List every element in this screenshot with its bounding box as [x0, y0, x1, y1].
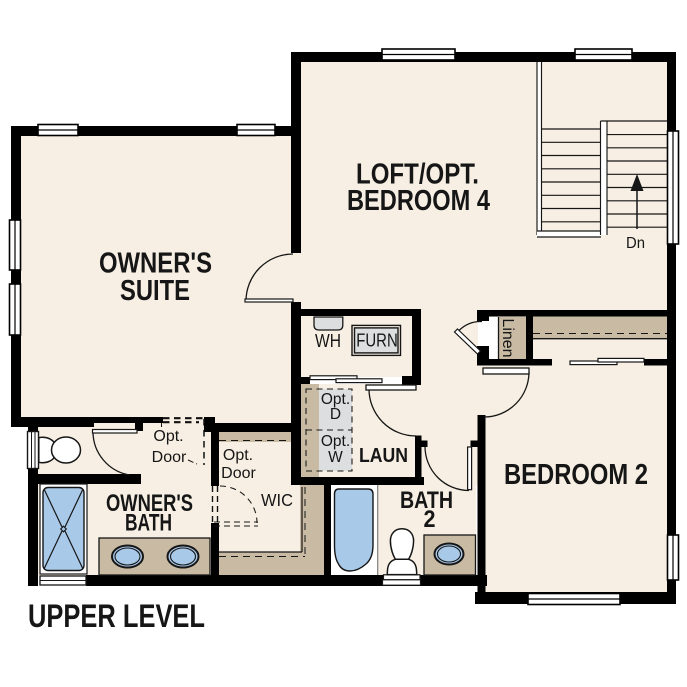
svg-text:BEDROOM 4: BEDROOM 4 — [347, 185, 490, 217]
svg-text:UPPER LEVEL: UPPER LEVEL — [28, 598, 205, 634]
svg-text:BATH: BATH — [125, 510, 172, 537]
svg-text:Opt.: Opt. — [153, 428, 183, 445]
svg-text:Opt.: Opt. — [321, 433, 350, 450]
svg-text:FURN: FURN — [356, 330, 398, 351]
svg-text:W: W — [328, 449, 343, 466]
svg-text:Opt.: Opt. — [223, 447, 253, 464]
svg-text:SUITE: SUITE — [120, 275, 190, 307]
svg-text:WH: WH — [315, 330, 341, 351]
svg-text:LAUN: LAUN — [359, 444, 408, 467]
svg-text:Door: Door — [221, 465, 256, 482]
svg-text:WIC: WIC — [261, 490, 293, 510]
svg-text:Linen: Linen — [499, 318, 516, 357]
svg-text:BEDROOM 2: BEDROOM 2 — [504, 459, 648, 491]
svg-text:Dn: Dn — [626, 235, 645, 252]
svg-text:D: D — [330, 406, 341, 423]
svg-text:2: 2 — [424, 506, 436, 533]
svg-text:Door: Door — [152, 449, 187, 466]
